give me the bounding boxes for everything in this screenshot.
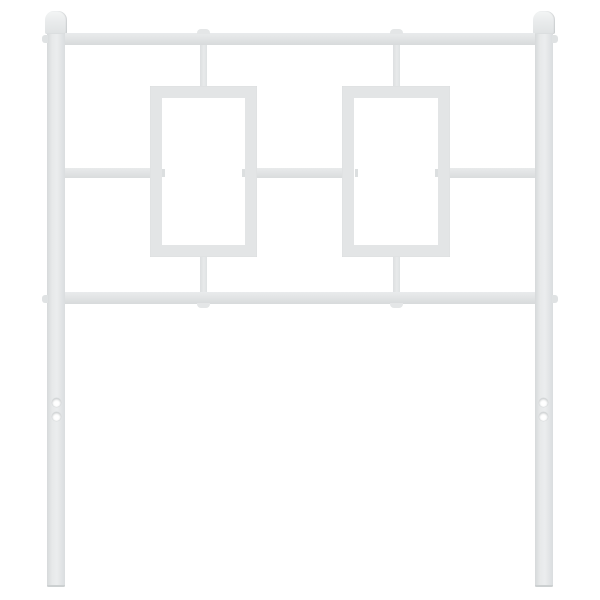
crossbar-notch-left-frame-inner-left — [162, 169, 165, 177]
weld-collar-bottom-right — [390, 303, 403, 308]
post-bracket-left-top — [42, 35, 48, 43]
connector-stub-bottom-right — [393, 257, 400, 292]
top-rail — [65, 33, 535, 45]
frame-left-opening — [162, 98, 245, 245]
crossbar-right-segment — [450, 168, 535, 178]
post-bracket-left-bottom — [42, 295, 48, 303]
finial-cap-left — [45, 11, 67, 34]
connector-stub-bottom-left — [200, 257, 207, 292]
rectangular-frame-right — [342, 86, 450, 257]
frame-right-opening — [354, 98, 438, 245]
headboard-post-left — [47, 30, 65, 587]
connector-stub-top-left — [200, 45, 207, 86]
post-bracket-right-top — [552, 35, 558, 43]
weld-collar-top-right — [390, 29, 403, 34]
weld-collar-bottom-left — [197, 303, 210, 308]
connector-stub-top-right — [393, 45, 400, 86]
mounting-hole-left-bottom — [52, 412, 61, 421]
bottom-rail — [65, 292, 535, 304]
leg-foot-right — [535, 585, 553, 587]
headboard-post-right — [535, 30, 553, 587]
leg-foot-left — [47, 585, 65, 587]
post-bracket-right-bottom — [552, 295, 558, 303]
image-alt-text: Studio photo of a white metal headboard … — [0, 0, 1, 1]
crossbar-notch-right-frame-inner-left — [355, 169, 358, 177]
weld-collar-top-left — [197, 29, 210, 34]
crossbar-notch-left-frame-inner-right — [242, 169, 245, 177]
mounting-hole-right-top — [539, 398, 548, 407]
crossbar-middle-segment — [257, 168, 342, 178]
mounting-hole-right-bottom — [539, 412, 548, 421]
headboard-product-photo: Studio photo of a white metal headboard … — [0, 0, 600, 600]
rectangular-frame-left — [150, 86, 257, 257]
mounting-hole-left-top — [52, 398, 61, 407]
finial-cap-right — [533, 11, 555, 34]
crossbar-notch-right-frame-inner-right — [435, 169, 438, 177]
crossbar-left-segment — [65, 168, 150, 178]
